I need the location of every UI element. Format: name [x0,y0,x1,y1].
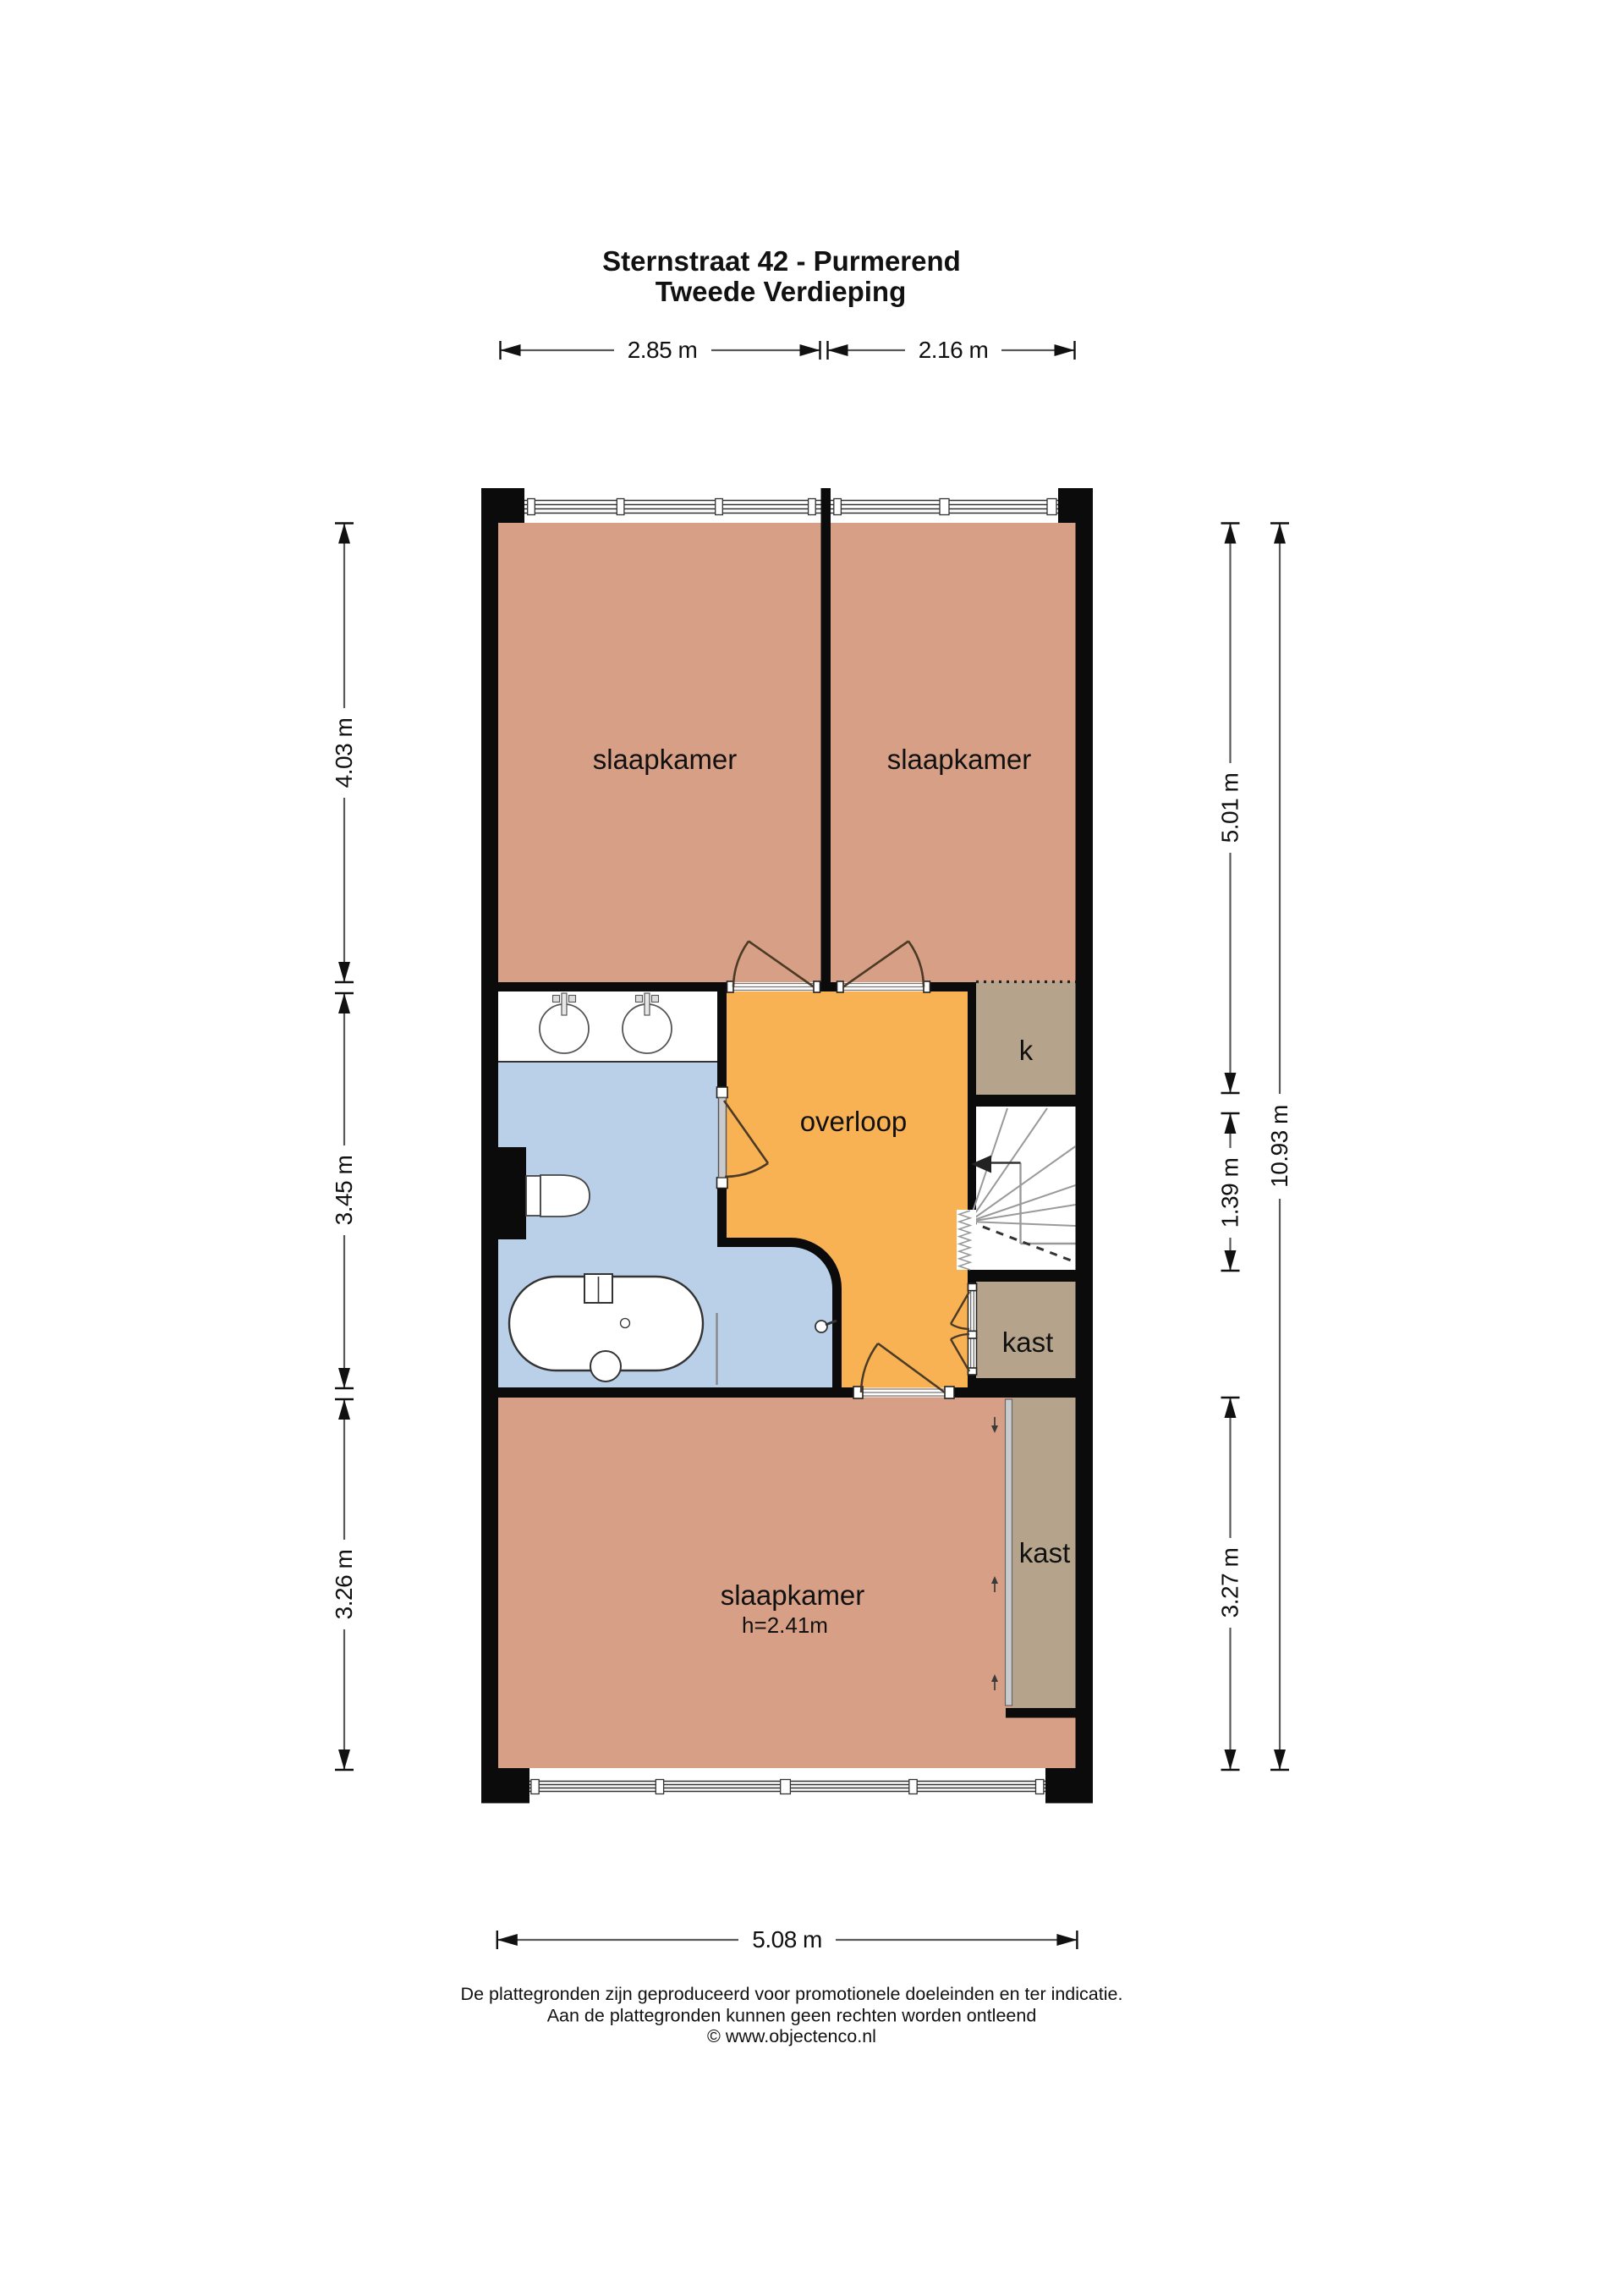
svg-text:slaapkamer: slaapkamer [721,1579,865,1611]
svg-text:De plattegronden zijn geproduc: De plattegronden zijn geproduceerd voor … [461,1984,1123,2004]
svg-text:1.39 m: 1.39 m [1217,1158,1243,1228]
svg-text:3.45 m: 3.45 m [331,1156,357,1226]
svg-text:kast: kast [1019,1537,1071,1568]
svg-text:3.26 m: 3.26 m [331,1550,357,1620]
svg-text:4.03 m: 4.03 m [331,718,357,788]
svg-text:Tweede Verdieping: Tweede Verdieping [656,276,906,307]
svg-text:slaapkamer: slaapkamer [593,744,738,775]
svg-text:kast: kast [1002,1327,1054,1358]
svg-text:2.16 m: 2.16 m [919,337,989,363]
svg-text:5.01 m: 5.01 m [1217,773,1243,843]
svg-text:3.27 m: 3.27 m [1217,1548,1243,1618]
svg-text:5.08 m: 5.08 m [752,1926,822,1953]
svg-text:2.85 m: 2.85 m [628,337,698,363]
svg-text:Aan de plattegronden kunnen ge: Aan de plattegronden kunnen geen rechten… [547,2006,1037,2026]
svg-text:h=2.41m: h=2.41m [742,1612,828,1638]
svg-text:10.93 m: 10.93 m [1266,1105,1292,1188]
svg-text:overloop: overloop [800,1106,908,1137]
svg-text:© www.objectenco.nl: © www.objectenco.nl [707,2026,876,2046]
svg-text:Sternstraat 42 - Purmerend: Sternstraat 42 - Purmerend [602,245,961,277]
svg-text:slaapkamer: slaapkamer [887,744,1032,775]
svg-text:k: k [1019,1035,1034,1066]
